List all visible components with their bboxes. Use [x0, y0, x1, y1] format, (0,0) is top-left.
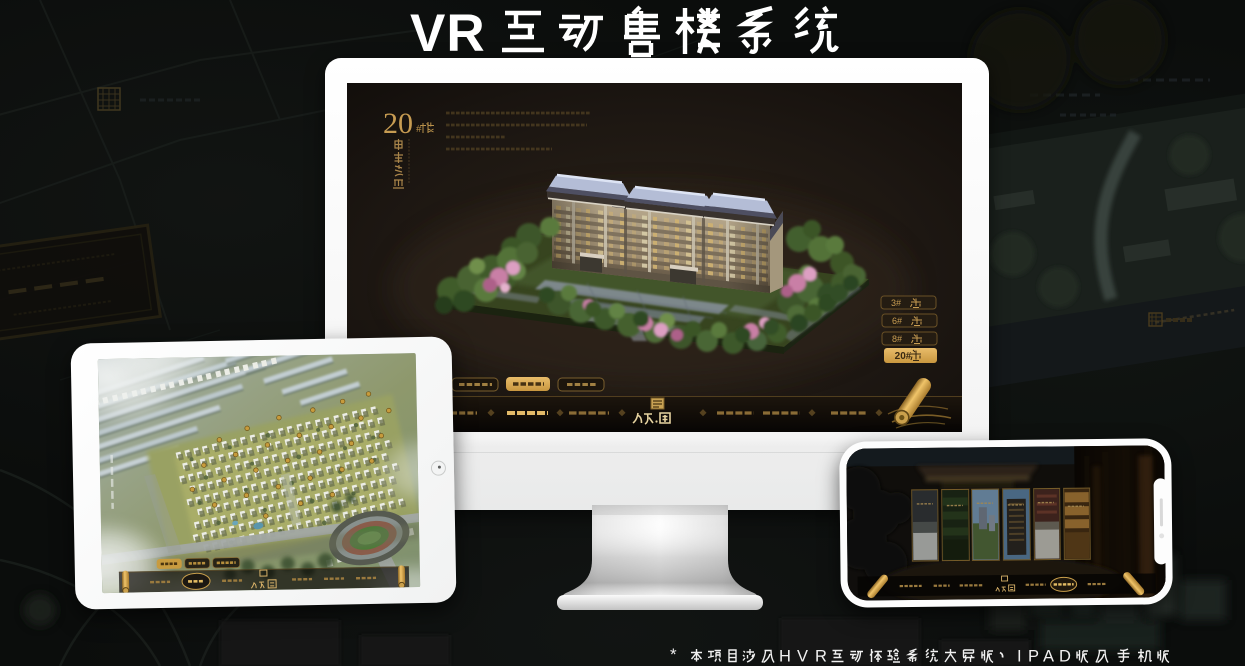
svg-text:P: P	[1028, 648, 1039, 666]
svg-text:20#: 20#	[895, 351, 912, 362]
svg-text:8#: 8#	[892, 334, 902, 344]
svg-text:H: H	[779, 648, 791, 666]
svg-text:I: I	[1017, 648, 1022, 666]
svg-text:*: *	[670, 645, 677, 664]
svg-text:R: R	[815, 648, 827, 666]
svg-text:A: A	[1043, 648, 1054, 666]
svg-text:6#: 6#	[892, 316, 902, 326]
svg-text:#: #	[416, 123, 422, 135]
svg-text:3#: 3#	[891, 298, 901, 308]
svg-text:20: 20	[383, 107, 413, 140]
svg-text:D: D	[1059, 648, 1071, 666]
svg-text:V: V	[797, 648, 808, 666]
svg-text:VR: VR	[410, 4, 486, 60]
